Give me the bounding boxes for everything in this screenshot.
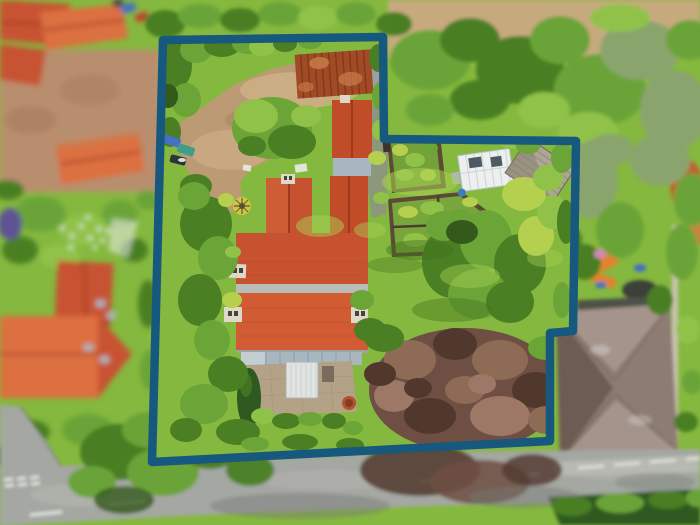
garden-gate bbox=[295, 163, 308, 173]
tree-canopy bbox=[198, 236, 238, 280]
roof-highlight bbox=[590, 345, 610, 355]
tree-canopy bbox=[596, 202, 644, 258]
chimney-pot bbox=[355, 311, 359, 316]
tree-canopy bbox=[594, 249, 606, 259]
tree-canopy bbox=[551, 143, 573, 173]
rooflight bbox=[100, 356, 109, 363]
tree-canopy bbox=[450, 80, 510, 120]
rooflight bbox=[107, 312, 116, 319]
aerial-photo bbox=[0, 0, 700, 525]
chimney-pot bbox=[234, 311, 238, 316]
tree-canopy bbox=[272, 413, 300, 429]
tree-canopy bbox=[470, 396, 530, 436]
chimney-stack bbox=[281, 174, 295, 184]
tree-canopy bbox=[354, 222, 386, 238]
rooflight bbox=[84, 344, 93, 351]
flower bbox=[101, 239, 105, 243]
tree-canopy bbox=[282, 434, 318, 450]
roof-vent bbox=[490, 156, 502, 167]
tree-canopy bbox=[502, 454, 562, 486]
tree-canopy bbox=[336, 2, 376, 26]
tree-canopy bbox=[234, 99, 278, 133]
tree-canopy bbox=[298, 412, 322, 426]
tree-canopy bbox=[178, 4, 222, 28]
tree-canopy bbox=[590, 4, 650, 32]
flower bbox=[93, 246, 97, 250]
chimney-pot bbox=[361, 311, 365, 316]
chimney-stack bbox=[224, 307, 242, 322]
tree-canopy bbox=[608, 258, 618, 266]
tree-canopy bbox=[222, 292, 242, 308]
tree-canopy bbox=[2, 236, 38, 264]
road-marking-dash bbox=[5, 485, 14, 486]
conservatory-roof-light bbox=[241, 352, 265, 365]
main-house-roof-north-slope bbox=[236, 233, 368, 285]
ornamental-wheel bbox=[233, 197, 251, 215]
flower bbox=[97, 227, 101, 231]
neighbour-house-main-roof bbox=[0, 316, 100, 398]
rooflight bbox=[96, 300, 105, 307]
roof-vent bbox=[468, 157, 482, 169]
road-marking-dash bbox=[18, 484, 27, 485]
chimney-pot bbox=[284, 176, 287, 180]
tree-canopy bbox=[298, 6, 338, 30]
tree-canopy bbox=[178, 182, 210, 210]
tree-canopy bbox=[446, 220, 478, 244]
tree-canopy bbox=[518, 92, 570, 128]
chimney-stack bbox=[340, 95, 350, 103]
flower bbox=[79, 224, 83, 228]
tree-canopy bbox=[296, 215, 344, 237]
tree-canopy bbox=[412, 298, 492, 322]
tree-canopy bbox=[238, 136, 266, 156]
tree-canopy bbox=[648, 491, 688, 509]
tree-canopy bbox=[615, 473, 695, 491]
chimney-pot bbox=[289, 176, 292, 180]
courtyard-shading bbox=[4, 106, 56, 134]
tree-canopy bbox=[406, 94, 454, 126]
tree-canopy bbox=[367, 257, 423, 273]
roof-highlight bbox=[628, 415, 652, 425]
tree-canopy bbox=[386, 240, 454, 260]
tree-canopy bbox=[291, 105, 321, 127]
tree-canopy bbox=[553, 282, 571, 318]
tree-canopy bbox=[251, 408, 275, 424]
tree-canopy bbox=[647, 285, 673, 315]
road-marking-dash bbox=[686, 458, 700, 459]
flower bbox=[88, 236, 92, 240]
road-marking-dash bbox=[31, 483, 40, 484]
tree-canopy bbox=[354, 318, 386, 342]
flower bbox=[106, 229, 110, 233]
tree-canopy bbox=[630, 134, 690, 186]
tree-canopy bbox=[530, 16, 590, 64]
tree-canopy bbox=[178, 274, 222, 326]
planter-centre bbox=[345, 399, 353, 407]
tree-canopy bbox=[666, 224, 698, 280]
tree-canopy bbox=[468, 374, 496, 394]
tree-canopy bbox=[472, 340, 528, 380]
tree-canopy bbox=[552, 496, 592, 516]
flower bbox=[70, 234, 74, 238]
tree-canopy bbox=[404, 398, 456, 434]
tree-canopy bbox=[225, 246, 241, 258]
flower bbox=[86, 215, 90, 219]
outbuilding-link-roof bbox=[333, 158, 371, 176]
flower bbox=[60, 226, 64, 230]
tree-canopy bbox=[170, 418, 202, 442]
road-marking-dash bbox=[17, 478, 26, 479]
tree-canopy bbox=[373, 192, 389, 204]
tree-canopy bbox=[634, 264, 646, 272]
tree-canopy bbox=[440, 264, 500, 288]
tree-canopy bbox=[180, 384, 228, 424]
tree-canopy bbox=[94, 486, 154, 514]
tree-canopy bbox=[210, 493, 390, 519]
tree-canopy bbox=[433, 328, 477, 360]
tree-canopy bbox=[268, 125, 316, 159]
tree-canopy bbox=[343, 421, 363, 435]
tree-canopy bbox=[368, 151, 386, 165]
tree-canopy bbox=[194, 320, 230, 360]
tree-canopy bbox=[350, 290, 374, 310]
chimney-pot bbox=[239, 268, 243, 273]
tree-canopy bbox=[220, 8, 260, 32]
tree-canopy bbox=[596, 493, 644, 513]
tree-canopy bbox=[218, 193, 234, 207]
neighbour-roof bbox=[0, 44, 46, 86]
tree-canopy bbox=[322, 413, 346, 429]
courtyard-shading bbox=[60, 74, 120, 106]
flower bbox=[69, 245, 73, 249]
tree-canopy bbox=[258, 2, 302, 26]
road-marking-dash bbox=[4, 479, 13, 480]
tree-canopy bbox=[674, 412, 698, 432]
tree-canopy bbox=[676, 316, 700, 344]
car-roof-detail bbox=[178, 158, 186, 162]
doorway bbox=[322, 366, 334, 382]
road-marking-dash bbox=[30, 477, 39, 478]
tree-canopy bbox=[241, 437, 269, 451]
chimney-pot bbox=[228, 311, 232, 316]
tree-canopy bbox=[527, 249, 563, 267]
tree-canopy bbox=[364, 362, 396, 386]
tree-canopy bbox=[376, 12, 412, 36]
tree-canopy bbox=[486, 281, 534, 323]
tree-canopy bbox=[404, 378, 432, 398]
ridge-flashing bbox=[236, 284, 368, 293]
tree-canopy bbox=[382, 168, 458, 196]
